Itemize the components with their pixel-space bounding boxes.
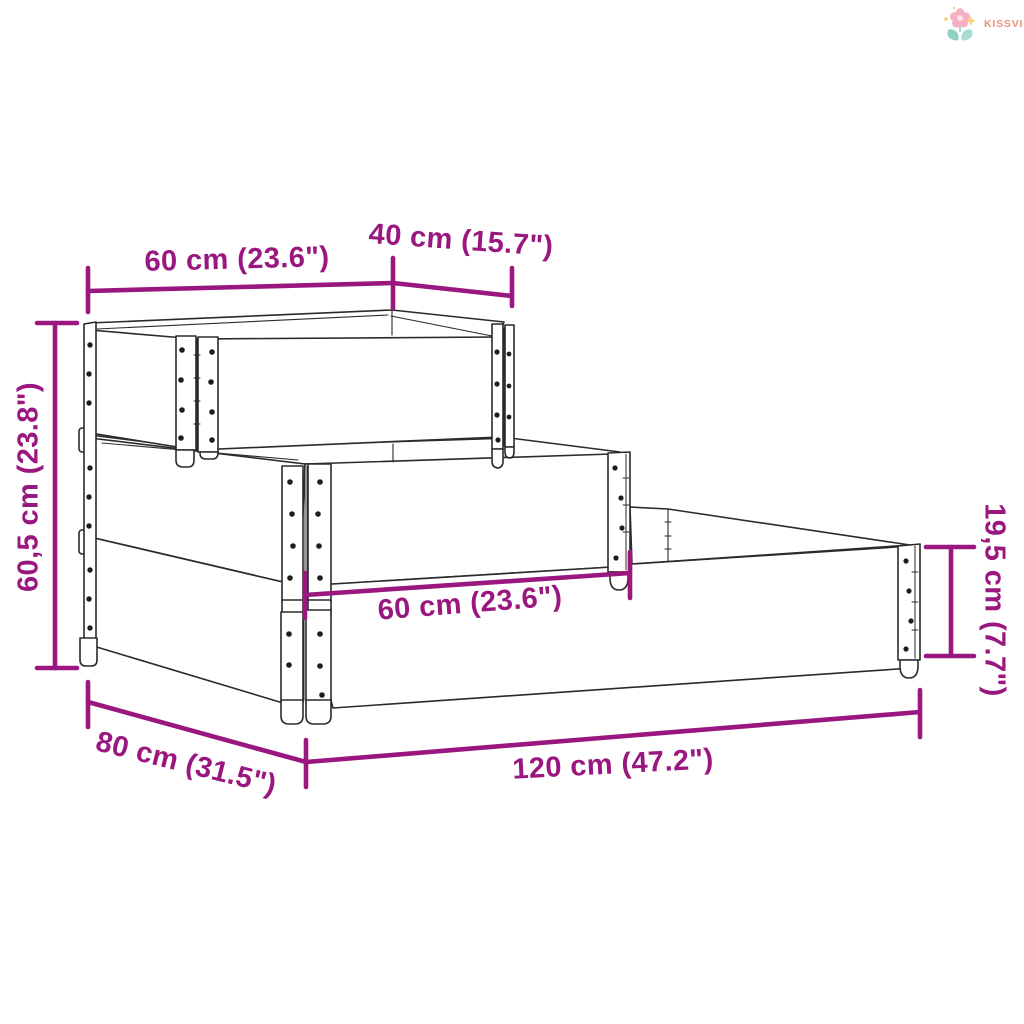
dimension-label-collar-height: 19,5 cm (7.7") [978, 503, 1011, 696]
top-tier-front-wall [196, 337, 500, 450]
planter-line-drawing [0, 0, 1024, 1024]
top-tier-front-hinge-post [176, 336, 218, 467]
diagram-canvas: 60 cm (23.6") 40 cm (15.7") 60,5 cm (23.… [0, 0, 1024, 1024]
brand-flower-icon [934, 4, 982, 44]
middle-tier-right-post [608, 452, 630, 590]
brand-name: KISSVILÁG [984, 18, 1024, 30]
bottom-tier-right-post [898, 544, 920, 678]
brand-logo: KISSVILÁG [934, 4, 1024, 44]
planter-structure [79, 310, 920, 724]
middle-tier-front-wall [300, 454, 612, 586]
dim-collar-height [926, 547, 974, 656]
dimension-label-top-width: 60 cm (23.6") [144, 241, 330, 279]
top-tier-right-post [492, 324, 514, 468]
dimension-label-total-height: 60,5 cm (23.8") [13, 382, 46, 592]
